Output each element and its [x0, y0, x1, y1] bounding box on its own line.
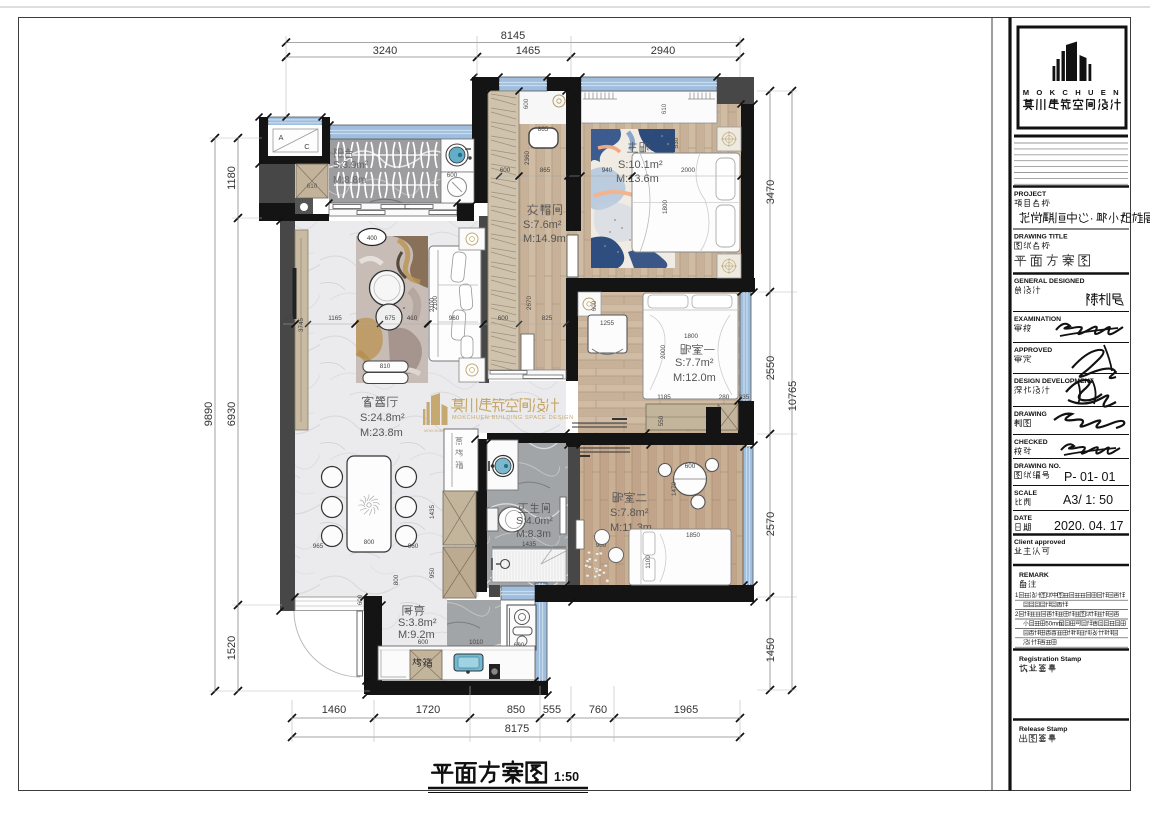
svg-text:S:7.8m²: S:7.8m² — [610, 507, 649, 519]
svg-text:P- 01- 01: P- 01- 01 — [1064, 470, 1115, 484]
svg-text:810: 810 — [380, 363, 391, 370]
svg-text:·: · — [1090, 213, 1094, 225]
svg-text:2000: 2000 — [660, 345, 667, 360]
svg-text:Registration Stamp: Registration Stamp — [1019, 656, 1081, 663]
svg-text:DRAWING NO.: DRAWING NO. — [1014, 463, 1061, 470]
svg-text:2020. 04. 17: 2020. 04. 17 — [1054, 519, 1124, 533]
svg-text:A: A — [278, 133, 283, 142]
svg-text:2550: 2550 — [765, 356, 777, 380]
svg-text:1100: 1100 — [645, 555, 652, 569]
svg-text:8145: 8145 — [501, 30, 525, 42]
svg-text:S:10.1m²: S:10.1m² — [618, 159, 663, 171]
svg-text:1165: 1165 — [328, 315, 342, 322]
svg-text:1800: 1800 — [684, 333, 699, 340]
svg-text:M:13.6m: M:13.6m — [616, 173, 659, 185]
svg-text:865: 865 — [538, 126, 549, 133]
svg-text:1460: 1460 — [322, 704, 346, 716]
svg-text:2100: 2100 — [432, 296, 439, 311]
svg-text:800: 800 — [393, 574, 400, 585]
svg-text:600: 600 — [523, 98, 530, 109]
svg-text:M:12.0m: M:12.0m — [673, 372, 716, 384]
svg-text:S:7.7m²: S:7.7m² — [675, 357, 714, 369]
svg-text:REMARK: REMARK — [1019, 572, 1049, 579]
svg-text:600: 600 — [685, 463, 696, 470]
svg-text:9890: 9890 — [203, 402, 215, 426]
svg-text:S:3.9m²: S:3.9m² — [333, 160, 369, 171]
svg-text:1965: 1965 — [674, 704, 698, 716]
svg-text:1010: 1010 — [469, 639, 484, 646]
svg-text:1450: 1450 — [765, 638, 777, 662]
svg-text:50mm: 50mm — [1045, 621, 1062, 627]
svg-text:Release Stamp: Release Stamp — [1019, 726, 1067, 733]
svg-text:1850: 1850 — [686, 532, 701, 539]
svg-text:1470: 1470 — [671, 482, 678, 497]
svg-text:600: 600 — [498, 315, 509, 322]
svg-text:A3/ 1: 50: A3/ 1: 50 — [1063, 493, 1113, 507]
svg-text:530: 530 — [673, 137, 680, 148]
svg-text:DRAWING TITLE: DRAWING TITLE — [1014, 234, 1068, 241]
svg-text:S:24.8m²: S:24.8m² — [360, 412, 405, 424]
svg-text:DRAWING: DRAWING — [1014, 411, 1047, 418]
svg-text:940: 940 — [602, 167, 613, 174]
svg-text:3470: 3470 — [765, 180, 777, 204]
svg-text:960: 960 — [449, 315, 460, 322]
svg-text:960: 960 — [408, 543, 419, 550]
svg-text:M:8.8m: M:8.8m — [333, 175, 366, 186]
svg-text:1185: 1185 — [657, 394, 671, 401]
svg-text:M O K C H U E N: M O K C H U E N — [1023, 88, 1122, 97]
svg-text:600: 600 — [591, 300, 598, 311]
svg-text:2940: 2940 — [651, 45, 675, 57]
svg-text:6930: 6930 — [226, 402, 238, 426]
svg-text:GENERAL DESIGNED: GENERAL DESIGNED — [1014, 278, 1085, 285]
svg-text:3240: 3240 — [373, 45, 397, 57]
svg-text:2000: 2000 — [681, 167, 696, 174]
svg-text:1255: 1255 — [600, 320, 615, 327]
svg-text:865: 865 — [540, 167, 551, 174]
svg-text:10765: 10765 — [787, 381, 799, 412]
svg-text:965: 965 — [313, 543, 324, 550]
svg-text:C: C — [304, 142, 310, 151]
svg-text:600: 600 — [447, 172, 458, 179]
svg-text:8175: 8175 — [505, 723, 529, 735]
svg-text:EXAMINATION: EXAMINATION — [1014, 316, 1061, 323]
svg-text:850: 850 — [507, 704, 525, 716]
svg-text:1180: 1180 — [226, 166, 238, 190]
svg-text:DATE: DATE — [1014, 515, 1032, 522]
svg-text:675: 675 — [385, 315, 396, 322]
svg-text:SCALE: SCALE — [1014, 490, 1038, 497]
svg-text:1465: 1465 — [516, 45, 540, 57]
svg-text:555: 555 — [543, 704, 561, 716]
svg-text:825: 825 — [542, 315, 553, 322]
svg-text:2570: 2570 — [765, 512, 777, 536]
svg-text:280: 280 — [719, 394, 730, 401]
svg-text:950: 950 — [429, 567, 436, 578]
svg-text:M:23.8m: M:23.8m — [360, 427, 403, 439]
svg-text:1435: 1435 — [429, 505, 436, 520]
svg-text:MOKCHUEN: MOKCHUEN — [424, 429, 445, 433]
svg-text:760: 760 — [589, 704, 607, 716]
svg-text:APPROVED: APPROVED — [1014, 347, 1052, 354]
svg-text:S:7.6m²: S:7.6m² — [523, 219, 562, 231]
svg-text:3745: 3745 — [298, 318, 305, 333]
svg-text:M:8.3m: M:8.3m — [516, 528, 551, 540]
svg-text:S:3.8m²: S:3.8m² — [398, 617, 437, 629]
svg-text:1720: 1720 — [416, 704, 440, 716]
svg-text:M:14.9m: M:14.9m — [523, 233, 566, 245]
svg-text:CHECKED: CHECKED — [1014, 439, 1048, 446]
svg-text:2360: 2360 — [524, 151, 531, 166]
svg-text:1:50: 1:50 — [554, 770, 579, 784]
svg-text:M:9.2m: M:9.2m — [398, 629, 435, 641]
svg-text:1800: 1800 — [662, 200, 669, 215]
svg-text:800: 800 — [364, 539, 375, 546]
svg-text:700: 700 — [283, 315, 294, 322]
svg-text:400: 400 — [367, 236, 378, 242]
svg-text:610: 610 — [307, 183, 318, 190]
svg-text:610: 610 — [661, 103, 668, 114]
svg-text:Client approved: Client approved — [1014, 539, 1065, 546]
svg-text:550: 550 — [658, 415, 665, 426]
svg-text:2670: 2670 — [526, 296, 533, 311]
svg-text:S:4.0m²: S:4.0m² — [516, 515, 553, 527]
svg-text:600: 600 — [418, 639, 429, 646]
svg-text:MOKCHUEN BUILDING SPACE DESIGN: MOKCHUEN BUILDING SPACE DESIGN — [452, 415, 574, 421]
svg-text:410: 410 — [407, 315, 418, 322]
svg-text:600: 600 — [500, 167, 511, 174]
svg-text:PROJECT: PROJECT — [1014, 191, 1047, 198]
svg-text:1520: 1520 — [226, 636, 238, 660]
